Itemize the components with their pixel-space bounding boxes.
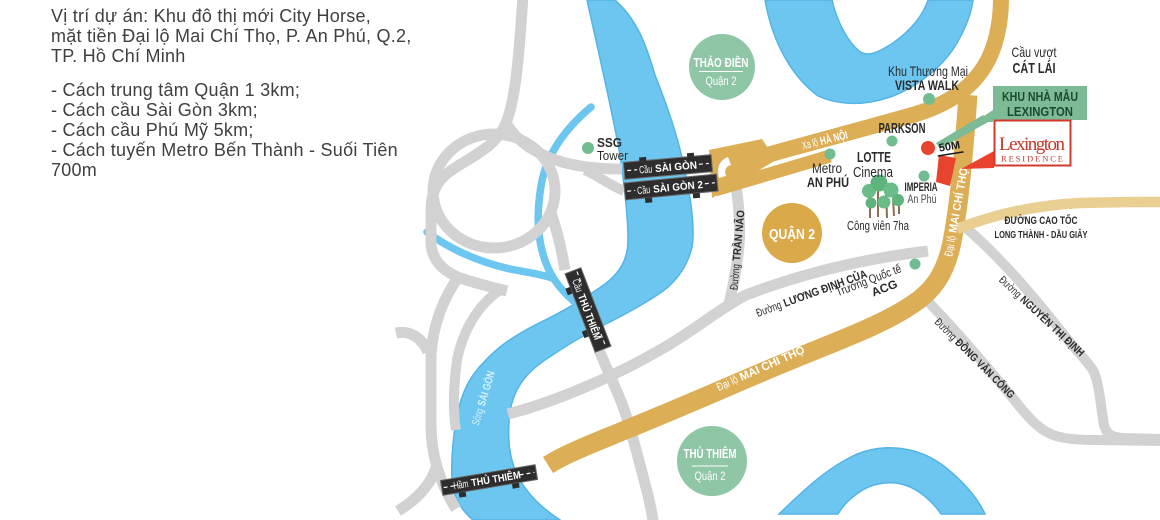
svg-text:Quận 2: Quận 2: [706, 76, 737, 88]
svg-text:LONG THÀNH - DẦU GIÂY: LONG THÀNH - DẦU GIÂY: [995, 228, 1088, 241]
svg-text:KHU NHÀ MẪU: KHU NHÀ MẪU: [1002, 89, 1078, 104]
svg-text:Đường: Đường: [729, 264, 743, 291]
svg-text:THẢO ĐIỀN: THẢO ĐIỀN: [694, 55, 749, 70]
svg-text:ĐƯỜNG CAO TỐC: ĐƯỜNG CAO TỐC: [1005, 213, 1078, 227]
svg-text:Lexington: Lexington: [999, 134, 1066, 155]
svg-text:PARKSON: PARKSON: [879, 120, 926, 137]
svg-text:IMPERIA: IMPERIA: [905, 182, 938, 194]
svg-text:RESIDENCE: RESIDENCE: [1001, 154, 1063, 164]
svg-text:Cinema: Cinema: [853, 164, 894, 181]
svg-text:Hầm: Hầm: [453, 478, 470, 492]
svg-text:VISTA WALK: VISTA WALK: [895, 77, 959, 93]
svg-text:Tower: Tower: [597, 148, 629, 163]
svg-text:LEXINGTON: LEXINGTON: [1007, 105, 1073, 119]
svg-text:QUẬN 2: QUẬN 2: [769, 225, 815, 243]
svg-text:CÁT LÁI: CÁT LÁI: [1013, 60, 1056, 77]
svg-text:Quận 2: Quận 2: [695, 471, 726, 483]
svg-text:THỦ THIÊM: THỦ THIÊM: [684, 446, 737, 461]
svg-text:An Phú: An Phú: [908, 194, 937, 206]
svg-text:Cầu vượt: Cầu vượt: [1012, 44, 1057, 60]
svg-text:Cầu: Cầu: [639, 163, 653, 176]
svg-text:Cầu: Cầu: [637, 184, 651, 197]
svg-text:Metro: Metro: [812, 161, 842, 176]
svg-text:Công viên 7ha: Công viên 7ha: [847, 218, 910, 233]
svg-text:AN PHÚ: AN PHÚ: [807, 175, 849, 190]
